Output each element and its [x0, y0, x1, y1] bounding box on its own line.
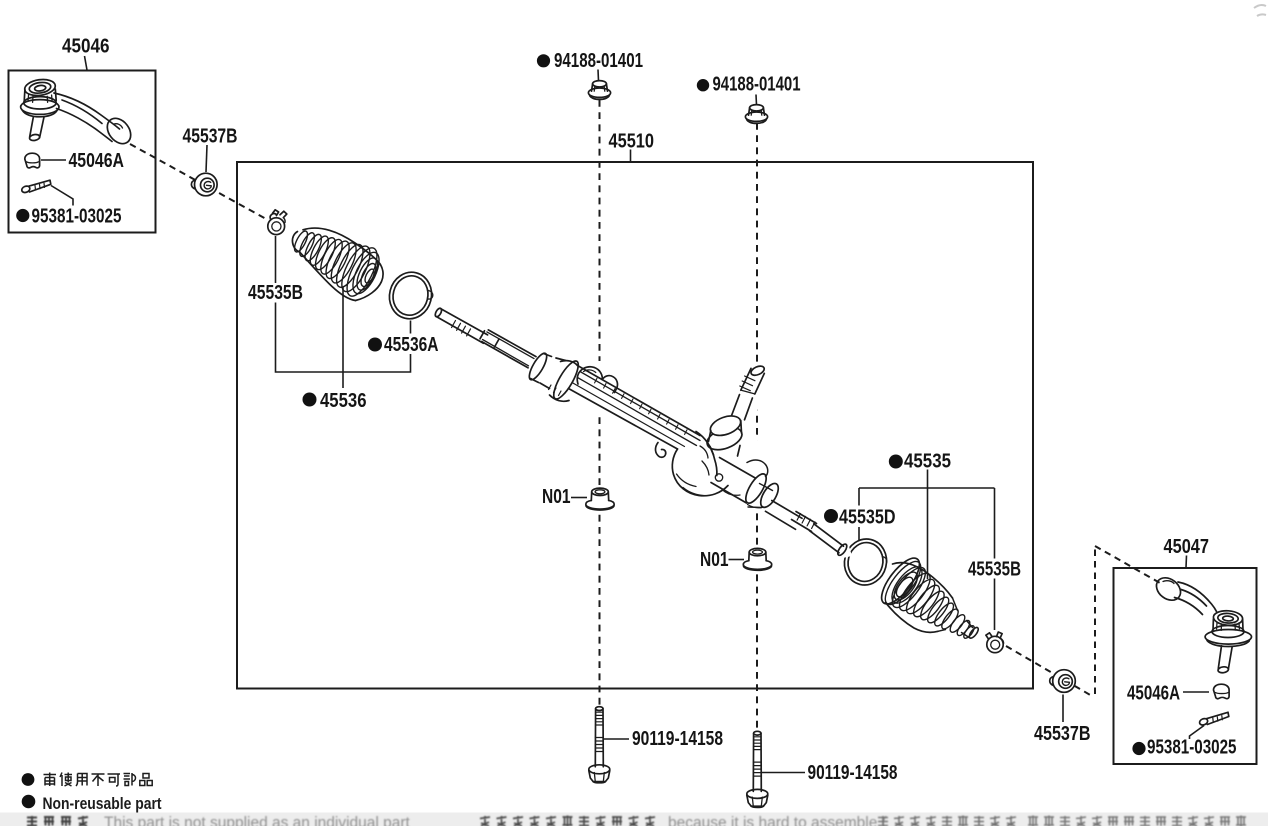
svg-text:45537B: 45537B [1034, 723, 1091, 745]
svg-text:45535: 45535 [904, 451, 951, 473]
svg-text:Non-reusable part: Non-reusable part [43, 794, 162, 813]
svg-text:45535B: 45535B [968, 559, 1021, 581]
svg-text:45535D: 45535D [839, 507, 896, 529]
svg-text:because it is hard to assemble: because it is hard to assemble ( [668, 815, 888, 826]
svg-text:N01: N01 [700, 549, 729, 571]
svg-text:45046: 45046 [62, 36, 110, 58]
svg-text:45535B: 45535B [248, 282, 303, 304]
svg-text:94188-01401: 94188-01401 [554, 50, 643, 72]
svg-text:90119-14158: 90119-14158 [808, 762, 898, 784]
svg-text:95381-03025: 95381-03025 [32, 206, 122, 228]
svg-text:45510: 45510 [609, 131, 655, 153]
svg-text:95381-03025: 95381-03025 [1147, 737, 1237, 759]
svg-text:45046A: 45046A [1127, 683, 1180, 705]
svg-text:45537B: 45537B [183, 126, 238, 148]
svg-text:90119-14158: 90119-14158 [632, 728, 723, 750]
svg-text:N01: N01 [542, 486, 571, 508]
svg-text:45536A: 45536A [384, 334, 439, 356]
svg-text:45047: 45047 [1164, 536, 1210, 558]
svg-text:94188-01401: 94188-01401 [713, 74, 801, 96]
svg-text:45536: 45536 [320, 390, 367, 412]
svg-text:45046A: 45046A [69, 150, 125, 172]
svg-text:This part is not supplied as a: This part is not supplied as an individu… [104, 815, 411, 826]
